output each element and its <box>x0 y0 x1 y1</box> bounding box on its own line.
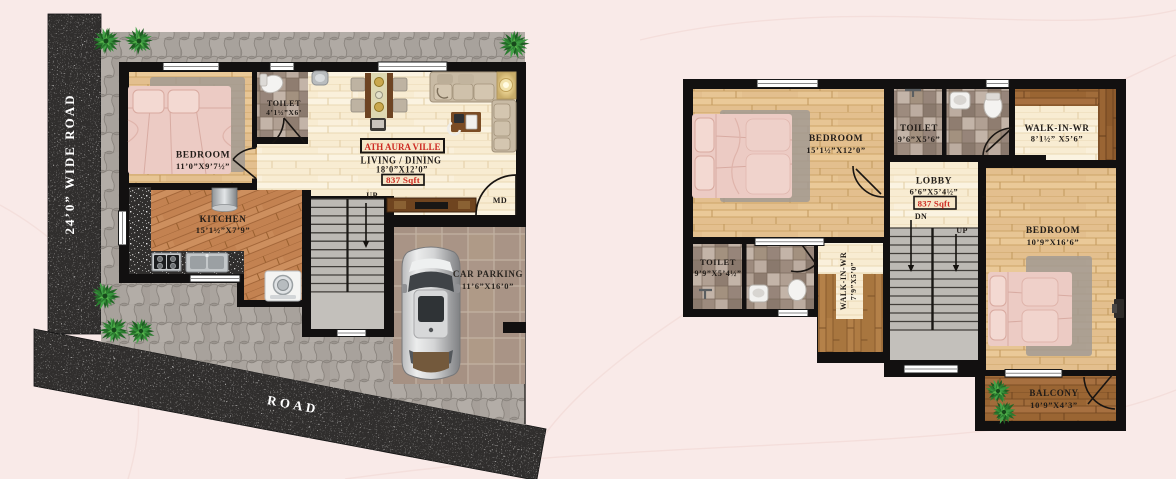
svg-text:6’6”X5’4½”: 6’6”X5’4½” <box>910 188 959 197</box>
svg-text:TOILET: TOILET <box>900 123 938 133</box>
svg-text:BEDROOM: BEDROOM <box>1026 226 1080 236</box>
svg-text:TOILET: TOILET <box>267 99 301 108</box>
svg-text:TOILET: TOILET <box>700 257 736 267</box>
svg-text:WALK-IN-WR: WALK-IN-WR <box>839 252 848 310</box>
svg-text:LOBBY: LOBBY <box>916 177 952 187</box>
svg-text:15’1½”X12’0”: 15’1½”X12’0” <box>806 145 865 155</box>
svg-text:18’0”X12’0”: 18’0”X12’0” <box>376 165 428 175</box>
svg-text:11’6”X16’0”: 11’6”X16’0” <box>462 281 514 291</box>
svg-text:DN: DN <box>915 212 927 221</box>
svg-text:837 Sqft: 837 Sqft <box>386 176 420 185</box>
svg-text:UP: UP <box>956 226 967 235</box>
svg-text:BEDROOM: BEDROOM <box>176 151 230 161</box>
svg-text:8’1½” X5’6”: 8’1½” X5’6” <box>1031 134 1083 144</box>
svg-text:9’9”X5’4½”: 9’9”X5’4½” <box>694 269 741 278</box>
svg-text:KITCHEN: KITCHEN <box>200 214 247 224</box>
svg-text:ATH AURA VILLE: ATH AURA VILLE <box>365 142 441 153</box>
svg-text:BEDROOM: BEDROOM <box>809 134 863 144</box>
svg-text:837 Sqft: 837 Sqft <box>918 199 951 209</box>
svg-text:15’1½”X7’9”: 15’1½”X7’9” <box>196 225 251 235</box>
svg-text:24’0” WIDE ROAD: 24’0” WIDE ROAD <box>62 94 77 235</box>
svg-text:7’9”X5’0”: 7’9”X5’0” <box>849 262 858 300</box>
svg-text:11’0”X9’7½”: 11’0”X9’7½” <box>176 161 230 171</box>
svg-text:4’1½”X6’: 4’1½”X6’ <box>266 108 302 117</box>
svg-text:WALK-IN-WR: WALK-IN-WR <box>1024 123 1089 133</box>
svg-text:9’6”X5’6”: 9’6”X5’6” <box>898 134 941 144</box>
svg-text:CAR PARKING: CAR PARKING <box>453 269 523 279</box>
svg-text:10’9”X16’6”: 10’9”X16’6” <box>1027 237 1079 247</box>
svg-text:10’9”X4’3”: 10’9”X4’3” <box>1030 400 1078 410</box>
svg-text:BALCONY: BALCONY <box>1029 388 1078 398</box>
svg-text:UP: UP <box>366 191 377 200</box>
svg-text:MD: MD <box>493 196 507 205</box>
